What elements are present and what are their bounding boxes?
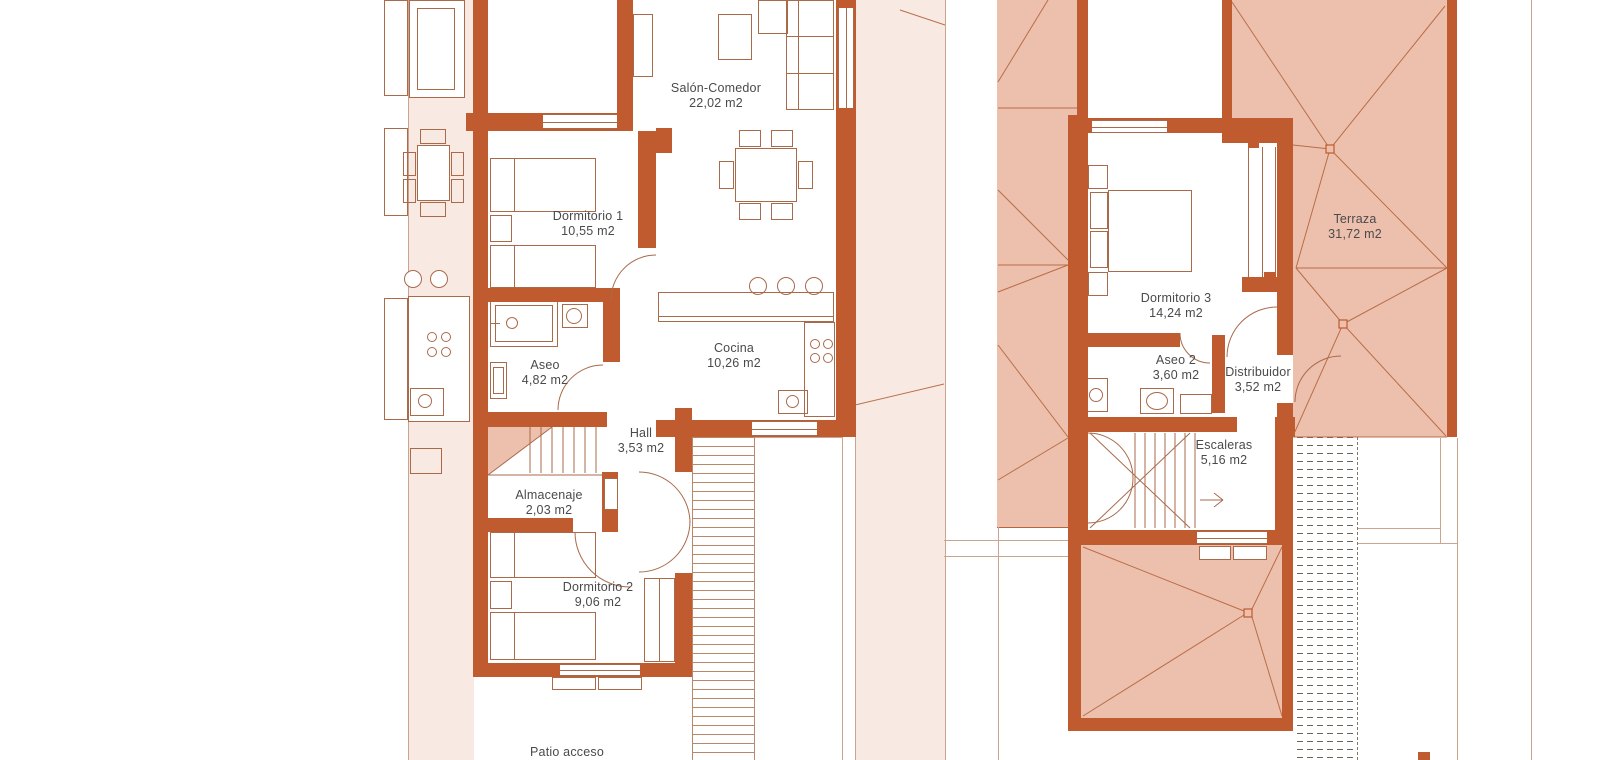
room-label-salon-comedor: Salón-Comedor 22,02 m2 [671,81,761,111]
neighbour-hob-icon [427,332,437,342]
wall-party [473,0,488,677]
window-icon [560,664,640,676]
neighbour-chair-icon [403,179,416,203]
side-garden [855,0,946,760]
sofa-icon [758,0,788,34]
chair-icon [771,130,793,147]
wall [1275,417,1295,545]
wall [617,0,633,118]
sofa-line-icon [786,73,834,74]
boundary-line [1531,0,1532,760]
room-label-dormitorio-1: Dormitorio 1 10,55 m2 [553,209,623,239]
bed-pillow-line-icon [514,533,515,577]
path-edge-line [842,437,843,760]
room-label-distribuidor: Distribuidor 3,52 m2 [1225,365,1291,395]
wall [1242,277,1277,292]
room-name: Almacenaje [515,488,582,503]
window-sill-icon [1233,546,1267,560]
neighbour-chair-icon [420,129,446,144]
boundary-line [1358,543,1457,544]
neighbour-sofa-cushion-icon [417,8,455,90]
bed-icon [490,612,596,660]
porch-roof [1081,545,1282,718]
wall-porch [1068,545,1081,731]
room-area: 3,53 m2 [618,441,665,456]
nightstand-icon [490,215,512,242]
door-leaf-icon [604,478,618,510]
neighbour-hob-icon [441,347,451,357]
kitchen-counter-icon [658,292,834,322]
wall-terraza [1277,143,1293,355]
wall [603,302,620,362]
nightstand-icon [1088,272,1108,296]
floor-plan-canvas: Salón-Comedor 22,02 m2 Dormitorio 1 10,5… [0,0,1620,760]
room-name: Hall [618,426,665,441]
room-area: 31,72 m2 [1328,227,1382,242]
room-label-aseo-2: Aseo 2 3,60 m2 [1153,353,1200,383]
neighbour-stool-icon [404,270,422,288]
wall-porch [1068,718,1295,731]
door-arc [639,521,690,572]
wall [1077,417,1237,432]
chair-icon [771,203,793,220]
wall [488,412,607,427]
stair-wedge [488,427,552,475]
toilet-bowl-icon [566,308,582,324]
room-name: Cocina [707,341,761,356]
sofa-line-icon [786,36,834,37]
pergola-hatch [1293,437,1358,760]
room-label-patio-acceso: Patio acceso [530,745,604,760]
neighbour-hob-icon [427,347,437,357]
room-label-terraza: Terraza 31,72 m2 [1328,212,1382,242]
terraza-roof [1293,143,1447,437]
wall [1222,0,1232,120]
bed-pillow-line-icon [514,159,515,211]
neighbour-counter-icon [384,298,408,420]
wall [1212,335,1225,413]
bathtub-inner-icon [495,305,553,342]
toilet-bowl-icon [1146,392,1168,410]
room-area: 5,16 m2 [1196,453,1253,468]
roof-left-band [997,115,1068,528]
door-arc [1227,307,1277,357]
sofa-line-icon [798,0,799,110]
window-sill-icon [1199,546,1231,560]
terrace-window-icon [1248,147,1276,277]
room-name: Aseo 2 [1153,353,1200,368]
room-area: 3,60 m2 [1153,368,1200,383]
room-area: 2,03 m2 [515,503,582,518]
sink-bowl-icon [786,395,799,408]
neighbour-stool-icon [430,270,448,288]
room-area: 10,55 m2 [553,224,623,239]
shower-tray-icon [1180,394,1212,414]
bed-icon [490,158,596,212]
hob-icon [823,339,833,349]
bed-pillow-line-icon [514,246,515,287]
pillow-icon [1090,192,1108,229]
bidet-inner-icon [493,367,504,394]
neighbour-chair-icon [451,152,464,176]
room-name: Aseo [522,358,569,373]
roof-left-band [997,0,1077,115]
window-icon [543,114,617,129]
boundary-line [1457,438,1458,760]
wardrobe-line-icon [659,578,660,662]
coffee-table-icon [718,14,752,60]
neighbour-hob-icon [441,332,451,342]
pillow-icon [1090,231,1108,268]
dining-table-icon [735,148,797,202]
room-name: Dormitorio 3 [1141,291,1211,306]
bathtub-drain-icon [506,317,518,329]
boundary-line [998,527,999,760]
room-label-almacenaje: Almacenaje 2,03 m2 [515,488,582,518]
hob-icon [810,339,820,349]
room-label-cocina: Cocina 10,26 m2 [707,341,761,371]
boundary-line [1358,528,1440,529]
outdoor-steps [692,437,755,760]
room-area: 3,52 m2 [1225,380,1291,395]
chair-icon [739,130,761,147]
neighbour-chair-icon [451,179,464,203]
hob-icon [810,353,820,363]
room-area: 9,06 m2 [563,595,633,610]
wall-terraza-east [1447,0,1457,437]
neighbour-fixture-icon [410,448,442,474]
neighbour-dining-table-icon [417,145,450,201]
wall [675,573,692,677]
chair-icon [798,161,813,189]
wall [488,288,620,302]
wall-exterior-west [1068,115,1088,545]
wall [1222,118,1293,143]
door-arc [639,472,690,523]
wall [1088,333,1180,347]
bed-icon [490,245,596,288]
bed-icon [490,532,596,578]
wall [638,131,656,248]
double-bed-icon [1108,190,1192,272]
door-leaf-icon [633,14,653,77]
room-area: 10,26 m2 [707,356,761,371]
faucet-icon [490,323,500,324]
stair-arc [1088,433,1133,523]
wall [675,408,692,472]
path-edge-line [755,437,842,438]
room-label-hall: Hall 3,53 m2 [618,426,665,456]
window-icon [1197,531,1267,544]
window-icon [838,8,854,108]
chair-icon [719,161,734,189]
bed-pillow-line-icon [514,613,515,659]
room-label-escaleras: Escaleras 5,16 m2 [1196,438,1253,468]
room-name: Terraza [1328,212,1382,227]
cut-off-element [1418,752,1430,760]
neighbour-sink-bowl-icon [418,394,432,408]
wall [1077,0,1088,118]
window-icon [752,421,817,436]
room-label-aseo: Aseo 4,82 m2 [522,358,569,388]
chair-icon [739,203,761,220]
boundary-line [944,540,1068,541]
room-area: 14,24 m2 [1141,306,1211,321]
window-sill-icon [552,677,596,690]
kitchen-counter-icon [804,322,835,417]
room-name: Distribuidor [1225,365,1291,380]
neighbour-chair-icon [403,152,416,176]
room-name: Dormitorio 2 [563,580,633,595]
room-name: Dormitorio 1 [553,209,623,224]
boundary-line [1440,438,1441,543]
window-icon [1092,120,1167,133]
room-label-dormitorio-3: Dormitorio 3 14,24 m2 [1141,291,1211,321]
nightstand-icon [1088,165,1108,189]
washbasin-bowl-icon [1089,388,1103,402]
window-frame-tick-icon [1248,141,1259,148]
neighbour-chair-icon [420,202,446,217]
window-sill-icon [598,677,642,690]
sofa-icon [786,0,834,110]
wall [656,128,672,153]
window-frame-tick-icon [1264,272,1276,279]
nightstand-icon [490,581,512,609]
kitchen-counter-line-icon [658,316,834,317]
room-area: 22,02 m2 [671,96,761,111]
room-name: Salón-Comedor [671,81,761,96]
room-label-dormitorio-2: Dormitorio 2 9,06 m2 [563,580,633,610]
room-name: Patio acceso [530,745,604,760]
room-name: Escaleras [1196,438,1253,453]
hob-icon [823,353,833,363]
boundary-line [944,556,1068,557]
neighbour-sofa-icon [384,0,408,96]
room-area: 4,82 m2 [522,373,569,388]
